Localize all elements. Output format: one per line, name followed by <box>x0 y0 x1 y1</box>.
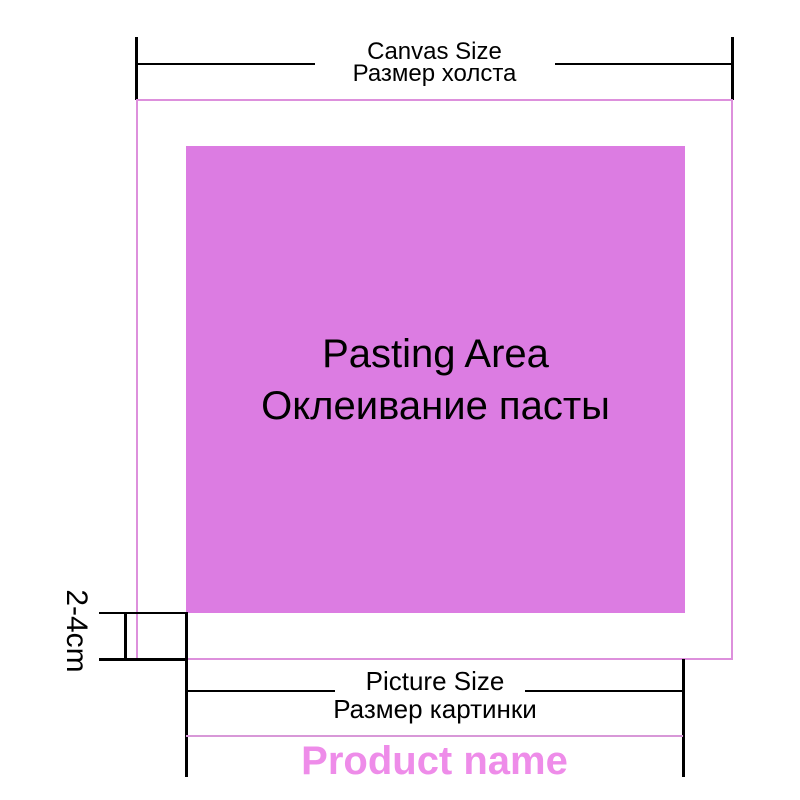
product-name-label: Product name <box>186 740 683 782</box>
picture-size-label-en: Picture Size <box>186 667 684 695</box>
margin-gap-label: 2-4cm <box>59 589 93 672</box>
canvas-size-label: Canvas Size Размер холста <box>136 41 733 84</box>
pasting-area-label-en: Pasting Area <box>322 334 549 374</box>
canvas-size-label-ru: Размер холста <box>136 63 733 85</box>
margin-gap-tick-bottom <box>99 658 187 661</box>
margin-gap-connector-line <box>124 612 127 660</box>
picture-size-label-ru: Размер картинки <box>186 695 684 723</box>
product-size-diagram: Canvas Size Размер холста Pasting Area О… <box>0 0 800 800</box>
pasting-area-label-ru: Оклеивание пасты <box>261 386 610 426</box>
pasting-area: Pasting Area Оклеивание пасты <box>186 146 685 613</box>
picture-size-label: Picture Size Размер картинки <box>186 667 684 723</box>
margin-gap-tick-top <box>99 612 187 615</box>
product-name-divider-line <box>186 735 683 737</box>
